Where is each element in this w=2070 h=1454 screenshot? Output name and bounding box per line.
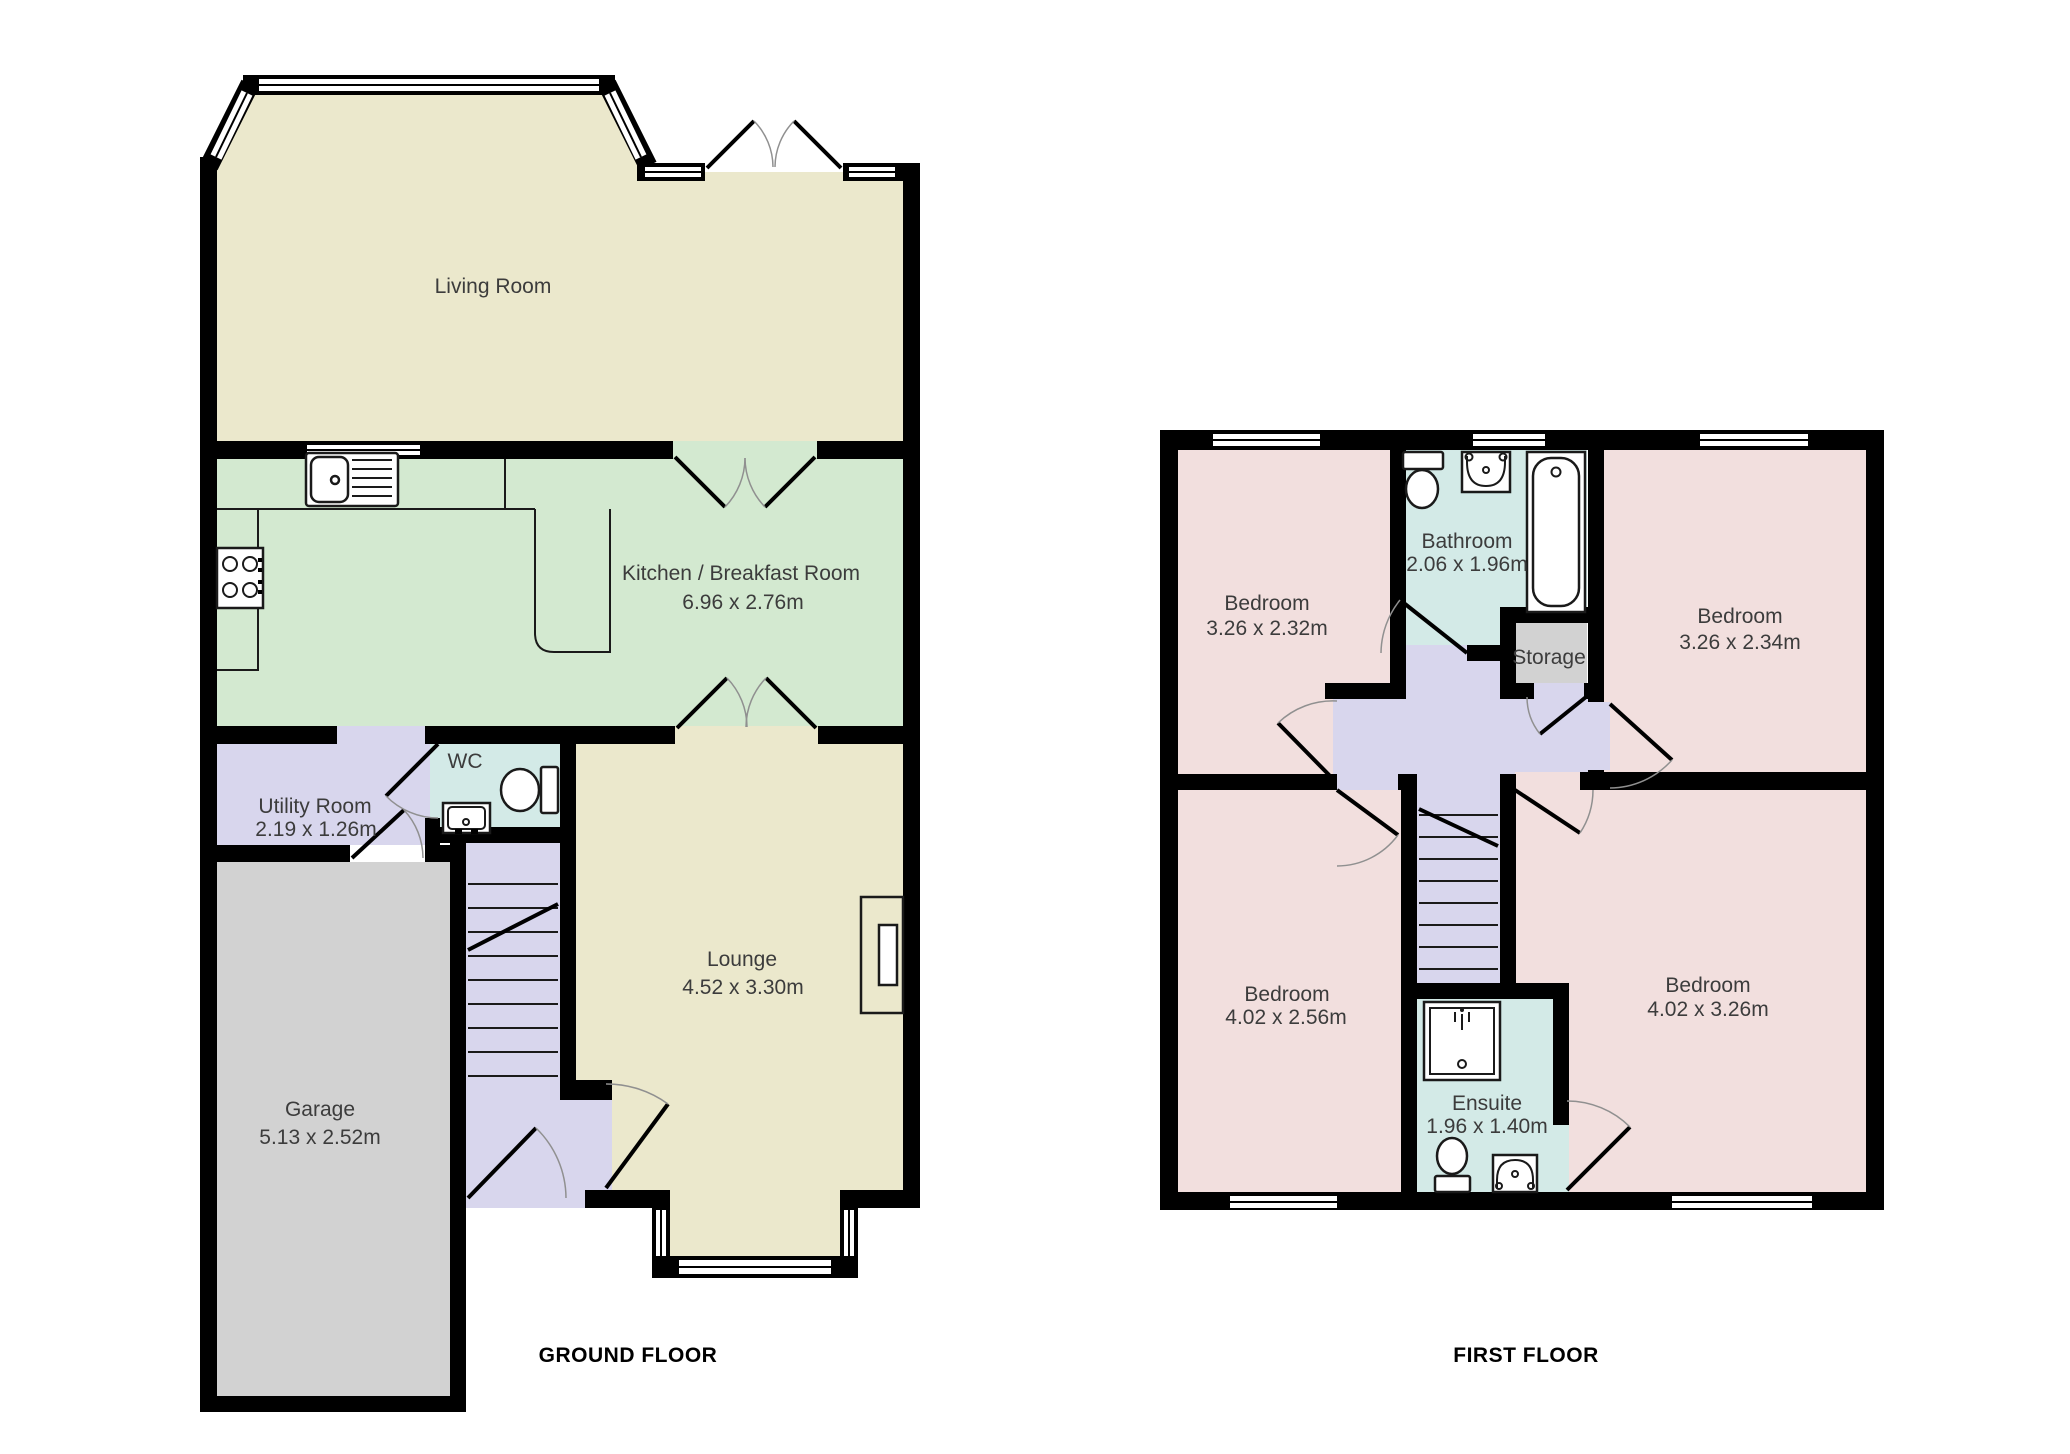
doorway-patch [337, 726, 425, 744]
bath-icon [1527, 452, 1585, 612]
hob-icon [217, 548, 263, 608]
ground-floor-title: GROUND FLOOR [539, 1344, 718, 1367]
stairs-area [1417, 774, 1500, 999]
room-living [217, 95, 903, 441]
room-label-wc: WC [448, 750, 483, 773]
ensuite-toilet-icon [1435, 1138, 1470, 1192]
landing-area [1333, 698, 1594, 774]
room-dims-ensuite: 1.96 x 1.40m [1426, 1115, 1547, 1138]
room-label-lounge: Lounge [707, 948, 777, 971]
room-dims-utility: 2.19 x 1.26m [255, 818, 376, 841]
window-icon [259, 78, 599, 92]
ensuite-basin-icon [1493, 1155, 1537, 1192]
room-dims-garage: 5.13 x 2.52m [259, 1126, 380, 1149]
doorway-patch [1515, 772, 1580, 790]
window-icon [679, 1259, 831, 1275]
room-dims-bedroom-tl: 3.26 x 2.32m [1206, 617, 1327, 640]
room-label-kitchen: Kitchen / Breakfast Room [622, 562, 860, 585]
first-floor-plan: Bedroom 3.26 x 2.32m Bathroom 2.06 x 1.9… [1160, 430, 1884, 1367]
lounge-bay-floor [670, 1190, 840, 1258]
kitchen-sink-icon [306, 453, 398, 506]
wc-toilet-icon [501, 767, 558, 813]
shower-icon [1424, 1002, 1500, 1080]
doorway-patch [1534, 683, 1584, 699]
fireplace-icon [861, 897, 903, 1013]
room-dims-bedroom-bl: 4.02 x 2.56m [1225, 1006, 1346, 1029]
room-dims-lounge: 4.52 x 3.30m [682, 976, 803, 999]
floorplan-page: Living Room Kitchen / Breakfast Room 6.9… [0, 0, 2070, 1454]
room-label-bedroom-br: Bedroom [1665, 974, 1750, 997]
room-label-bedroom-bl: Bedroom [1244, 983, 1329, 1006]
window-icon [843, 1210, 855, 1256]
window-icon [1473, 433, 1545, 447]
room-label-living: Living Room [435, 275, 552, 298]
window-icon [655, 1210, 667, 1256]
doorway-patch [673, 441, 817, 459]
window-icon [1672, 1195, 1812, 1209]
doorway-patch [1553, 1125, 1569, 1192]
room-label-ensuite: Ensuite [1452, 1092, 1522, 1115]
room-dims-bedroom-br: 4.02 x 3.26m [1647, 998, 1768, 1021]
window-icon [1213, 433, 1320, 447]
room-label-bedroom-tl: Bedroom [1224, 592, 1309, 615]
doorway-patch [1594, 702, 1610, 770]
window-icon [1230, 1195, 1337, 1209]
room-label-bathroom: Bathroom [1421, 530, 1512, 553]
first-floor-title: FIRST FLOOR [1453, 1344, 1599, 1367]
window-icon [645, 166, 701, 178]
room-label-utility: Utility Room [258, 795, 371, 818]
room-label-storage: Storage [1512, 646, 1586, 669]
window-icon [849, 166, 895, 178]
room-dims-bathroom: 2.06 x 1.96m [1406, 553, 1527, 576]
doorway-patch [596, 1100, 612, 1190]
floorplan-canvas: Living Room Kitchen / Breakfast Room 6.9… [0, 0, 2070, 1454]
room-dims-bedroom-tr: 3.26 x 2.34m [1679, 631, 1800, 654]
ground-floor-plan: Living Room Kitchen / Breakfast Room 6.9… [200, 75, 920, 1412]
room-dims-kitchen: 6.96 x 2.76m [682, 591, 803, 614]
room-label-garage: Garage [285, 1098, 355, 1121]
doorway-patch [1337, 774, 1398, 790]
window-icon [1700, 433, 1808, 447]
stairs-area [466, 843, 560, 1080]
wc-basin-icon [443, 803, 490, 834]
room-label-bedroom-tr: Bedroom [1697, 605, 1782, 628]
doorway-patch [675, 726, 818, 744]
bathroom-basin-icon [1462, 452, 1510, 492]
